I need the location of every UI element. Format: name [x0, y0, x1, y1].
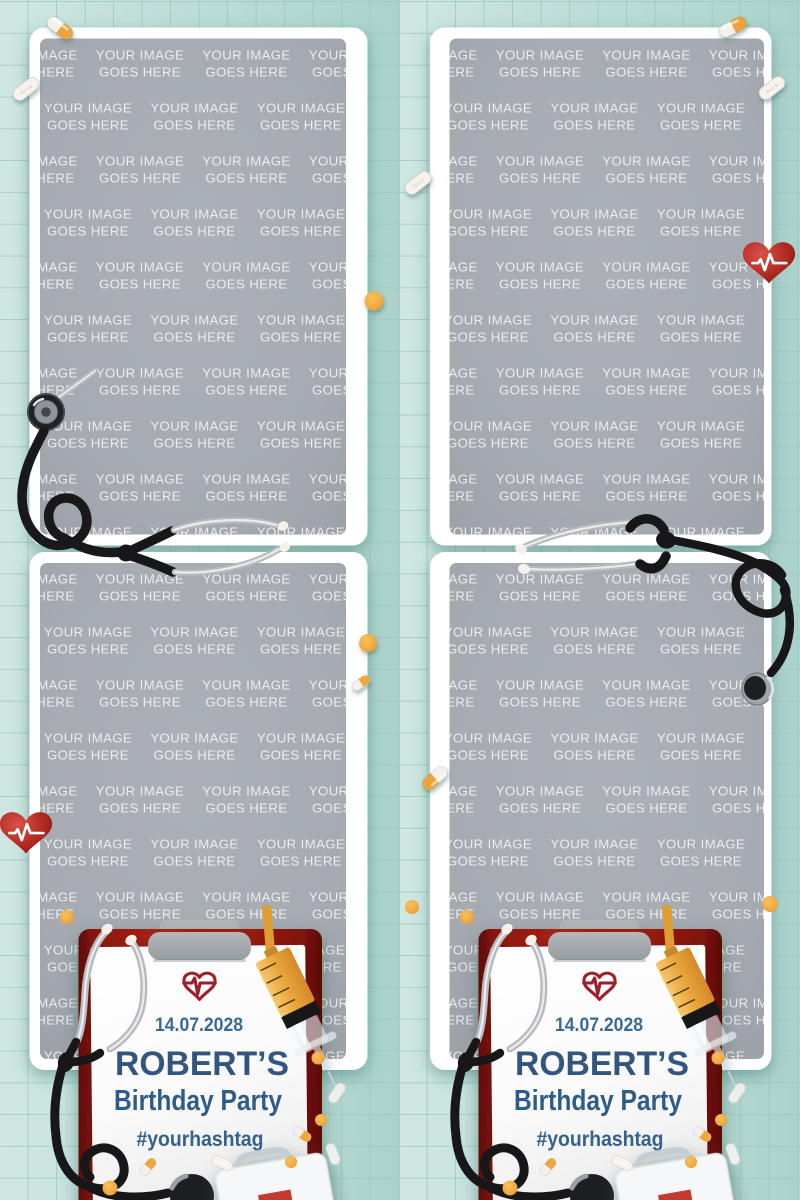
svg-text:14.07.2028: 14.07.2028 — [155, 1015, 243, 1036]
svg-text:ROBERT’S: ROBERT’S — [115, 1045, 289, 1083]
svg-text:Birthday Party: Birthday Party — [114, 1085, 282, 1117]
svg-text:#yourhashtag: #yourhashtag — [137, 1127, 264, 1151]
